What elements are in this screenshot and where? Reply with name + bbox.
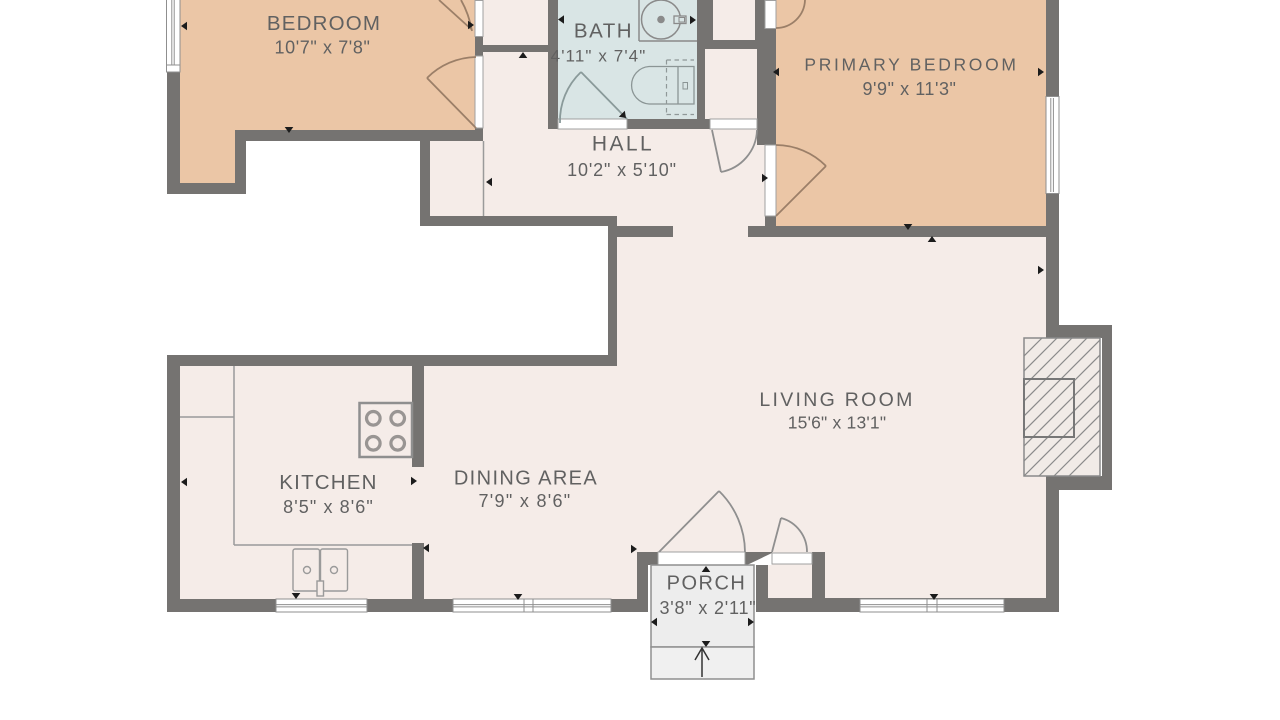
svg-text:9'9" x 11'3": 9'9" x 11'3" xyxy=(863,79,957,99)
svg-text:7'9" x 8'6": 7'9" x 8'6" xyxy=(479,491,572,511)
svg-text:4'11" x 7'4": 4'11" x 7'4" xyxy=(551,47,647,66)
svg-text:15'6" x 13'1": 15'6" x 13'1" xyxy=(788,413,887,433)
svg-text:LIVING ROOM: LIVING ROOM xyxy=(759,389,914,411)
svg-text:10'2" x 5'10": 10'2" x 5'10" xyxy=(567,160,677,180)
svg-text:KITCHEN: KITCHEN xyxy=(279,471,377,494)
svg-text:HALL: HALL xyxy=(592,133,654,156)
svg-text:DINING AREA: DINING AREA xyxy=(454,468,598,490)
svg-text:3'8" x 2'11": 3'8" x 2'11" xyxy=(660,598,757,618)
svg-text:PRIMARY BEDROOM: PRIMARY BEDROOM xyxy=(804,55,1018,75)
svg-text:BATH: BATH xyxy=(574,20,633,43)
svg-text:PORCH: PORCH xyxy=(667,573,747,595)
svg-text:BEDROOM: BEDROOM xyxy=(267,12,381,35)
svg-text:10'7" x 7'8": 10'7" x 7'8" xyxy=(275,38,371,58)
svg-text:8'5" x 8'6": 8'5" x 8'6" xyxy=(283,497,374,517)
